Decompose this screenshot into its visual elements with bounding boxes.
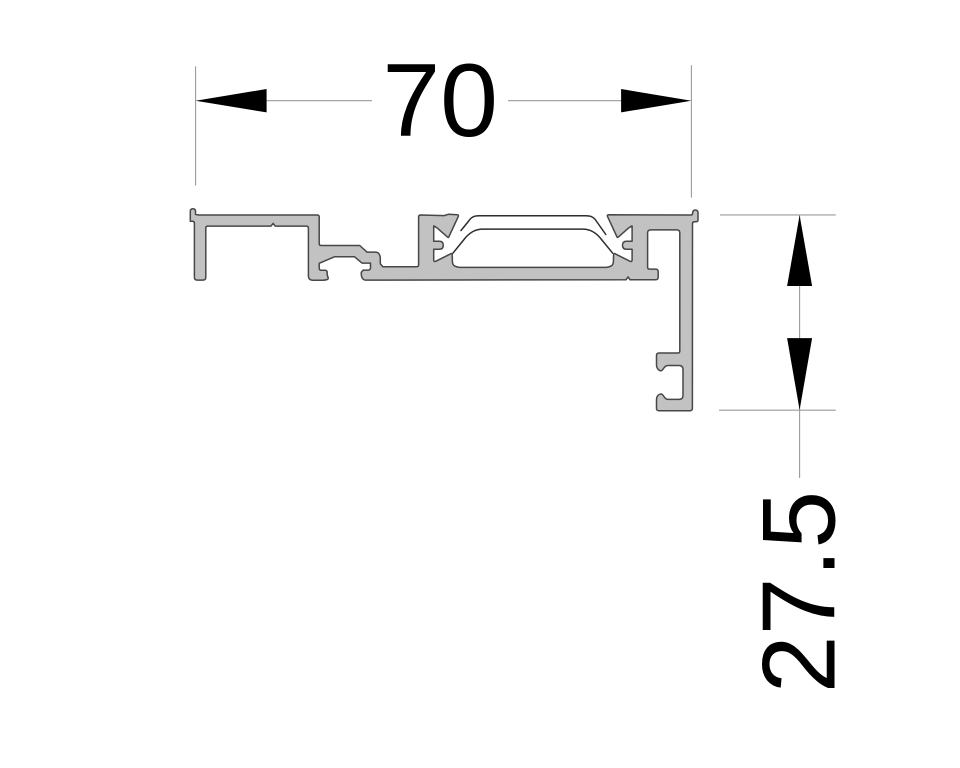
svg-text:70: 70: [382, 43, 498, 159]
svg-text:27.5: 27.5: [742, 491, 858, 693]
